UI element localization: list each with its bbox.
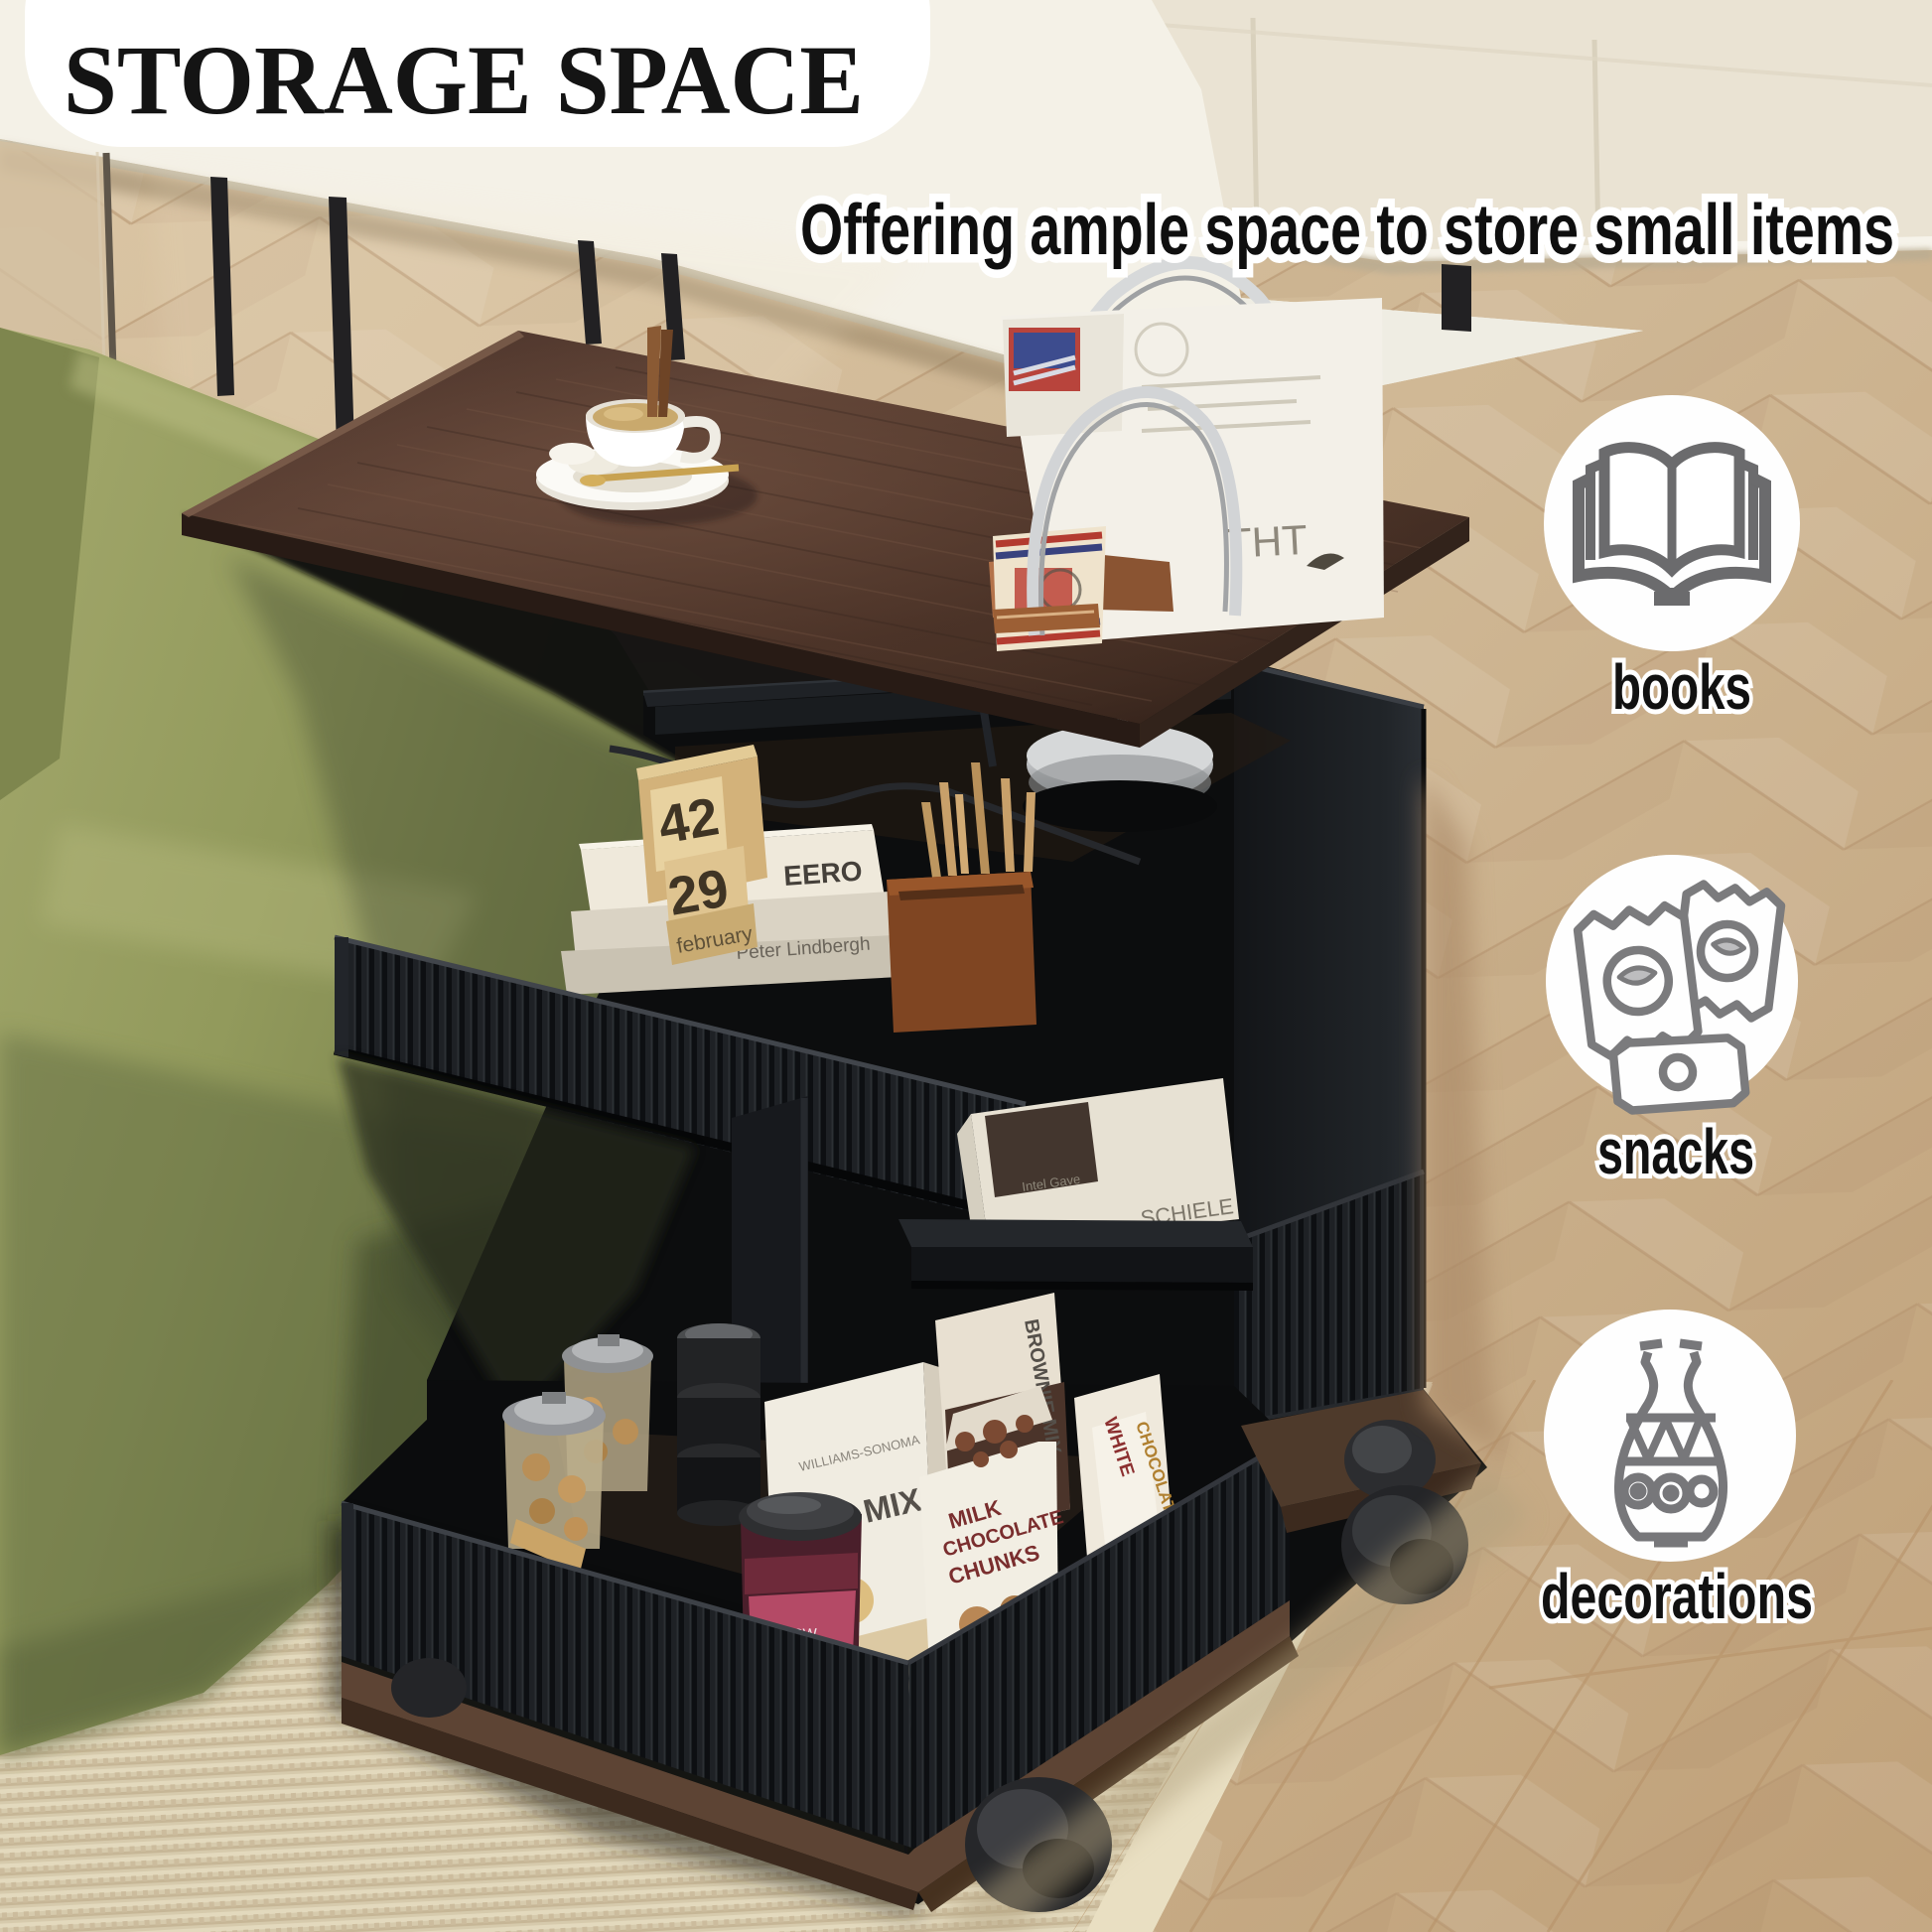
svg-text:EERO: EERO: [782, 856, 863, 892]
svg-text:Offering ample space to store: Offering ample space to store small item…: [800, 191, 1894, 270]
svg-text:snacks: snacks: [1597, 1116, 1754, 1187]
svg-text:42: 42: [654, 786, 724, 856]
svg-text:books: books: [1612, 651, 1751, 723]
svg-text:decorations: decorations: [1541, 1561, 1813, 1632]
svg-text:29: 29: [664, 858, 734, 927]
svg-text:STORAGE SPACE: STORAGE SPACE: [64, 25, 864, 135]
